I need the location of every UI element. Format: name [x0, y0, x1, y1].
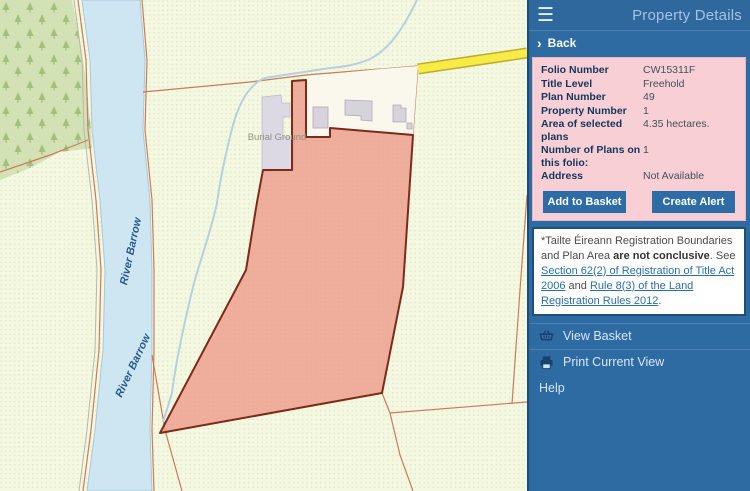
- help-button[interactable]: Help: [529, 375, 750, 401]
- detail-label: Number of Plans on this folio:: [541, 144, 643, 169]
- menu-icon[interactable]: ☰: [537, 6, 554, 25]
- back-label: Back: [548, 36, 577, 50]
- printer-icon: [539, 355, 554, 370]
- print-current-view-button[interactable]: Print Current View: [529, 349, 750, 375]
- create-alert-button[interactable]: Create Alert: [652, 191, 735, 213]
- detail-value: 1: [643, 144, 649, 169]
- disclaimer-text: . See: [710, 250, 736, 262]
- detail-value: Freehold: [643, 78, 684, 91]
- disclaimer-text: and: [565, 280, 589, 292]
- detail-label: Area of selected plans: [541, 118, 643, 143]
- detail-row: Property Number 1: [541, 105, 737, 118]
- sidebar-header: ☰ Property Details: [529, 0, 750, 30]
- property-details-sidebar: ☰ Property Details › Back Folio Number C…: [527, 0, 750, 491]
- detail-label: Title Level: [541, 78, 643, 91]
- detail-label: Address: [541, 170, 643, 183]
- detail-row: Address Not Available: [541, 170, 737, 183]
- detail-row: Number of Plans on this folio: 1: [541, 144, 737, 169]
- detail-row: Area of selected plans 4.35 hectares.: [541, 118, 737, 143]
- detail-value: CW15311F: [643, 64, 695, 77]
- help-label: Help: [539, 381, 565, 395]
- basket-icon: [539, 329, 554, 344]
- detail-row: Title Level Freehold: [541, 78, 737, 91]
- disclaimer-bold: are not conclusive: [613, 250, 710, 262]
- chevron-right-icon: ›: [537, 36, 542, 50]
- add-to-basket-button[interactable]: Add to Basket: [543, 191, 626, 213]
- detail-value: 1: [643, 105, 649, 118]
- view-basket-label: View Basket: [563, 329, 632, 343]
- view-basket-button[interactable]: View Basket: [529, 323, 750, 349]
- map-viewport[interactable]: Burial Ground River Barrow River Barrow: [0, 0, 527, 491]
- detail-label: Property Number: [541, 105, 643, 118]
- detail-row: Plan Number 49: [541, 91, 737, 104]
- detail-row: Folio Number CW15311F: [541, 64, 737, 77]
- page-title: Property Details: [554, 7, 742, 24]
- detail-label: Plan Number: [541, 91, 643, 104]
- disclaimer-text: .: [658, 295, 661, 307]
- burial-ground-label: Burial Ground: [248, 132, 307, 143]
- registration-disclaimer: *Tailte Éireann Registration Boundaries …: [532, 227, 746, 316]
- print-current-view-label: Print Current View: [563, 355, 664, 369]
- detail-value: Not Available: [643, 170, 704, 183]
- back-button[interactable]: › Back: [529, 30, 750, 54]
- detail-label: Folio Number: [541, 64, 643, 77]
- detail-value: 4.35 hectares.: [643, 118, 710, 143]
- folio-details-panel: Folio Number CW15311F Title Level Freeho…: [532, 57, 746, 221]
- detail-value: 49: [643, 91, 655, 104]
